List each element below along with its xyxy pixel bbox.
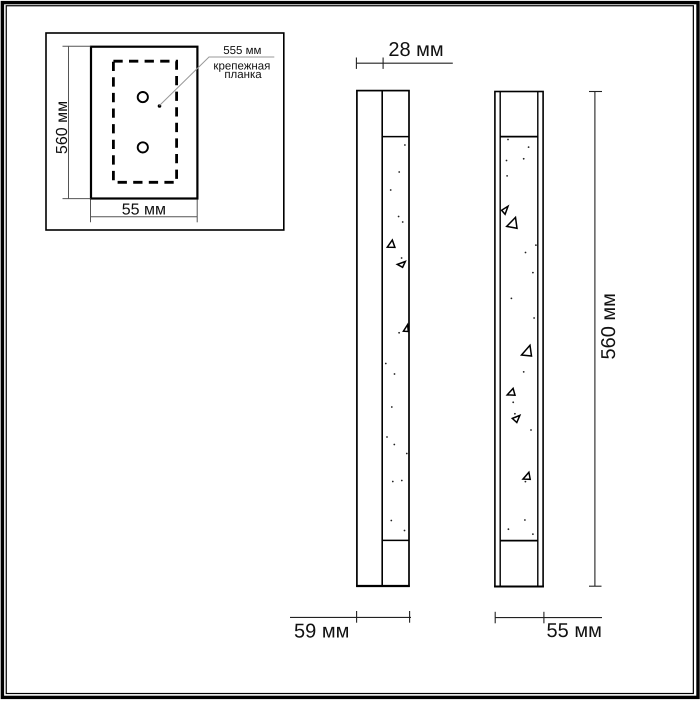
- svg-text:55 мм: 55 мм: [547, 620, 602, 642]
- svg-text:28 мм: 28 мм: [388, 39, 443, 61]
- svg-text:59 мм: 59 мм: [294, 621, 349, 643]
- svg-text:560 мм: 560 мм: [598, 293, 620, 359]
- svg-text:планка: планка: [224, 69, 262, 81]
- svg-text:55 мм: 55 мм: [122, 201, 166, 218]
- svg-text:555 мм: 555 мм: [223, 45, 261, 57]
- svg-text:560 мм: 560 мм: [54, 101, 71, 154]
